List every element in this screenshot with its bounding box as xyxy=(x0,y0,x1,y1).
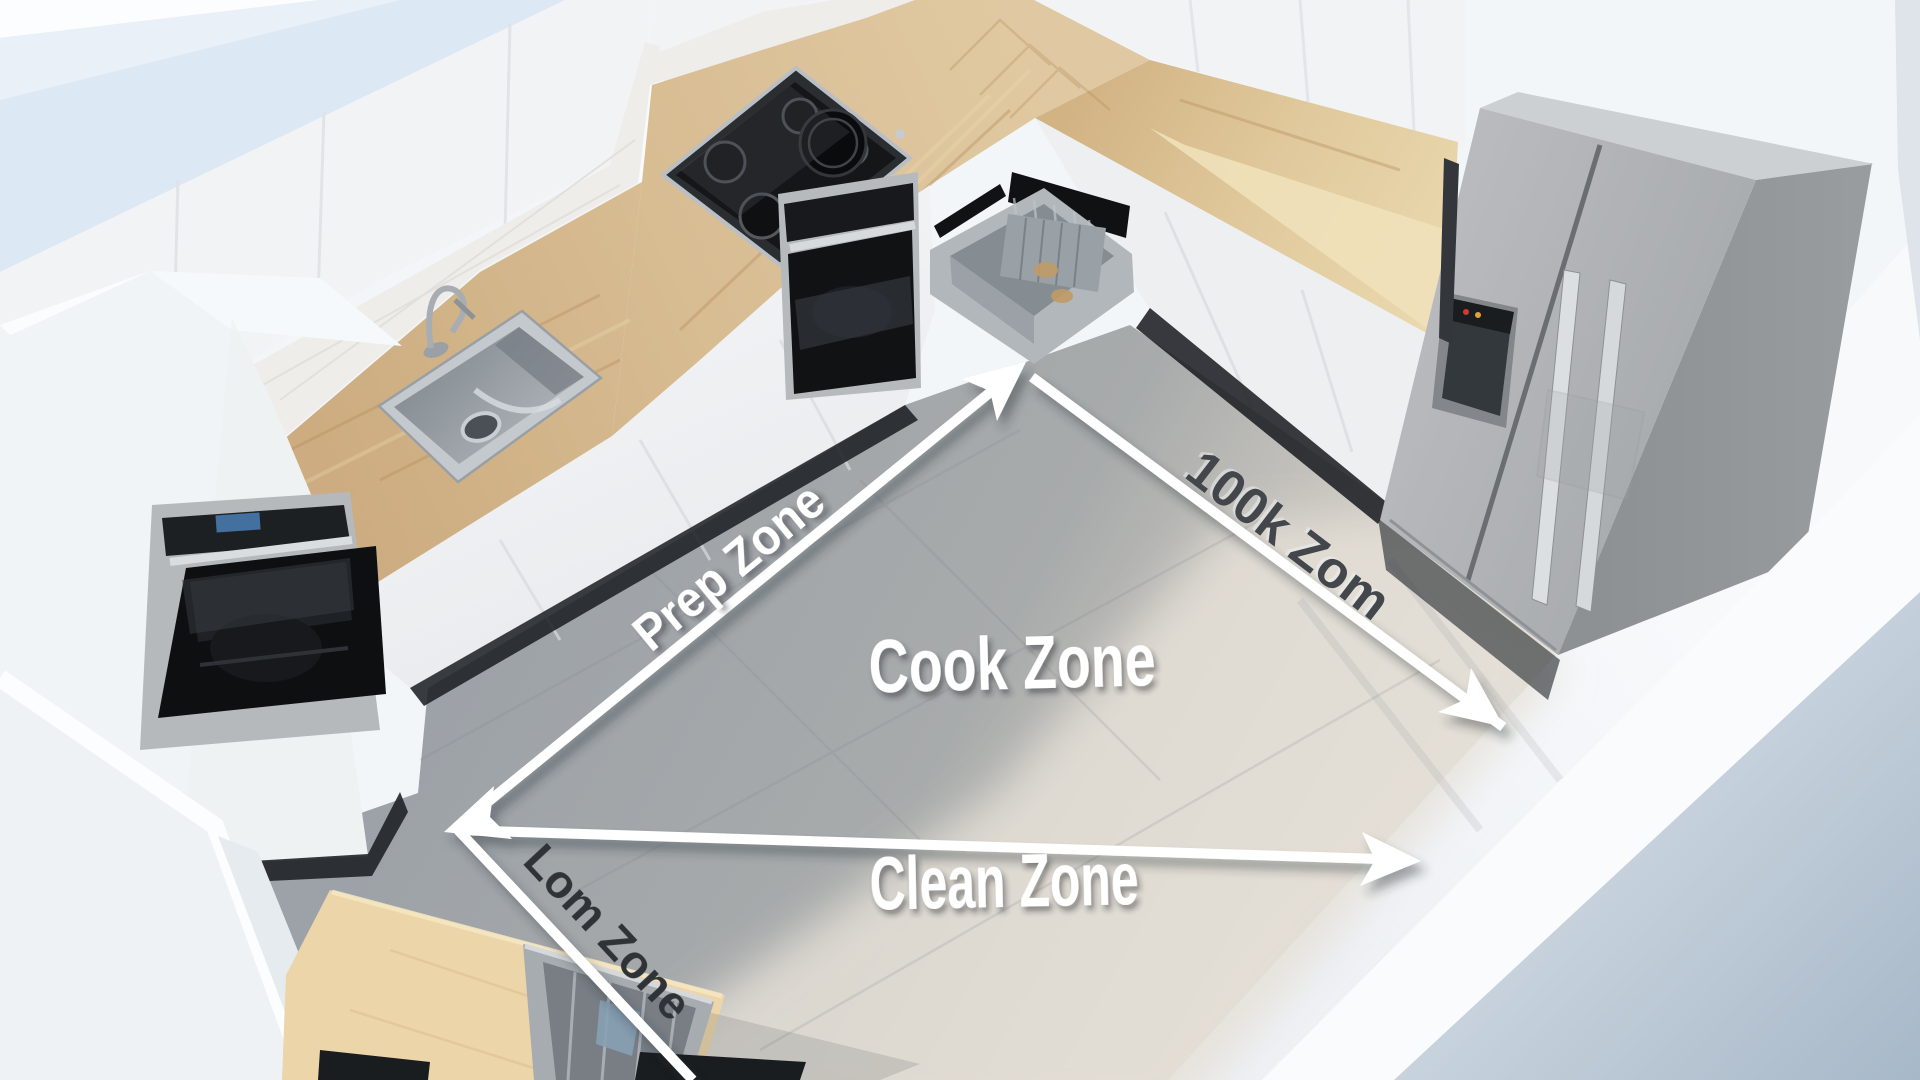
svg-text:Clean Zone: Clean Zone xyxy=(869,836,1140,926)
svg-text:Cook Zone: Cook Zone xyxy=(867,617,1156,708)
